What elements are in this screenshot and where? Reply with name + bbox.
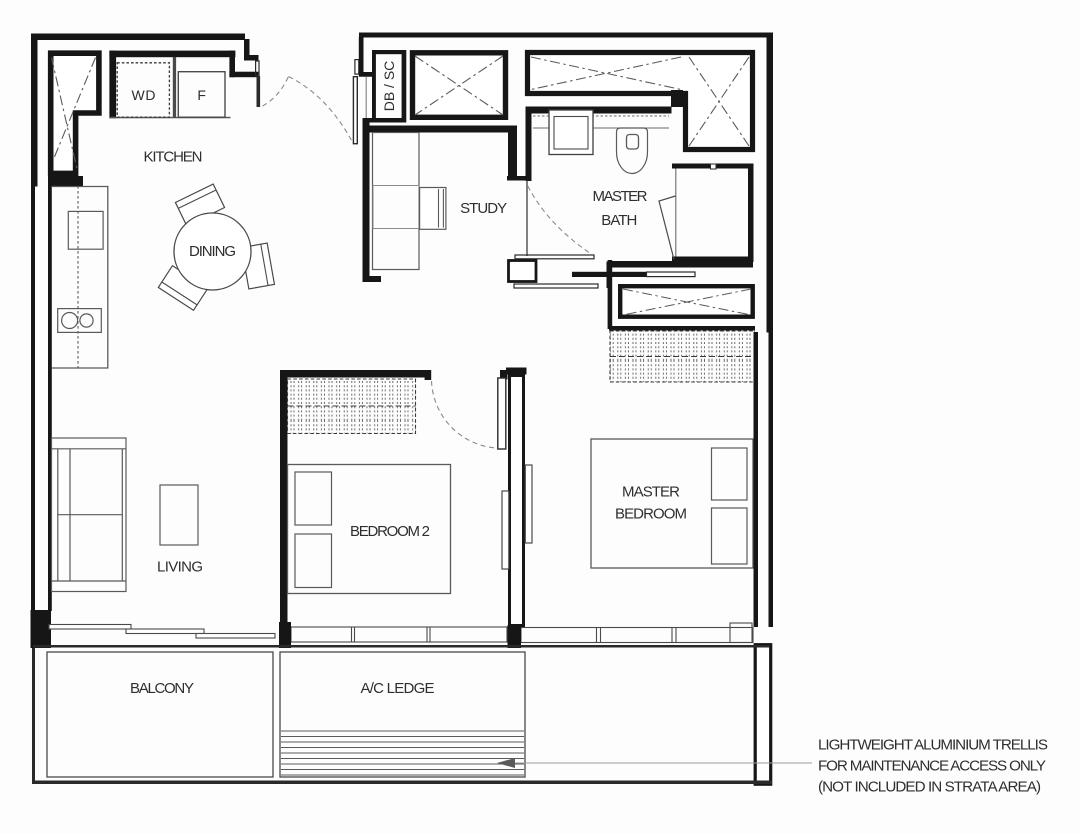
svg-text:A/C LEDGE: A/C LEDGE — [361, 680, 435, 697]
svg-text:MASTER: MASTER — [593, 188, 648, 205]
svg-text:BEDROOM: BEDROOM — [615, 506, 687, 523]
svg-text:STUDY: STUDY — [460, 200, 507, 217]
svg-text:LIVING: LIVING — [157, 559, 203, 576]
svg-text:(NOT INCLUDED IN STRATA AREA): (NOT INCLUDED IN STRATA AREA) — [818, 779, 1041, 796]
svg-text:BALCONY: BALCONY — [130, 680, 194, 697]
svg-text:MASTER: MASTER — [622, 484, 680, 501]
svg-text:BATH: BATH — [601, 212, 637, 229]
svg-text:F: F — [197, 87, 206, 103]
svg-text:LIGHTWEIGHT ALUMINIUM TRELLIS: LIGHTWEIGHT ALUMINIUM TRELLIS — [818, 737, 1048, 754]
svg-text:DB / SC: DB / SC — [381, 61, 397, 112]
svg-text:DINING: DINING — [189, 243, 236, 260]
svg-text:FOR MAINTENANCE ACCESS ONLY: FOR MAINTENANCE ACCESS ONLY — [818, 758, 1046, 775]
svg-text:BEDROOM 2: BEDROOM 2 — [350, 523, 430, 540]
svg-text:KITCHEN: KITCHEN — [144, 149, 203, 166]
svg-text:WD: WD — [132, 87, 156, 103]
